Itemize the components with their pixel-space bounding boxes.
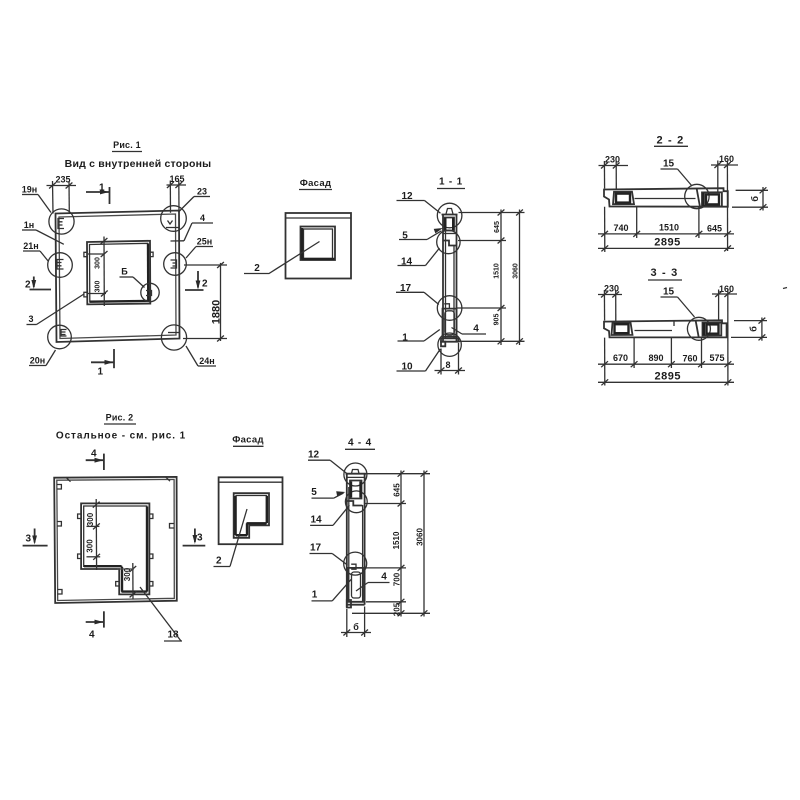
svg-text:12: 12 [308,450,320,461]
svg-text:24н: 24н [199,356,214,366]
svg-text:205: 205 [393,602,402,616]
svg-text:645: 645 [707,224,722,234]
svg-text:17: 17 [310,543,322,554]
svg-text:300: 300 [94,257,101,269]
svg-text:2: 2 [202,279,208,290]
svg-text:4: 4 [91,449,97,460]
svg-text:300: 300 [86,539,95,553]
svg-text:1 - 1: 1 - 1 [439,177,463,188]
svg-text:14: 14 [310,515,322,526]
svg-text:3: 3 [28,314,33,324]
svg-text:3060: 3060 [512,263,519,279]
svg-text:300: 300 [86,512,95,526]
svg-text:300: 300 [123,567,132,581]
svg-text:25н: 25н [197,237,212,247]
svg-text:3: 3 [197,533,203,544]
svg-text:1: 1 [98,367,104,378]
svg-text:3060: 3060 [416,528,425,546]
svg-text:15: 15 [663,159,675,170]
svg-text:Фасад: Фасад [232,435,264,446]
svg-text:21н: 21н [23,241,38,251]
svg-text:5: 5 [311,487,317,498]
svg-text:2895: 2895 [655,371,681,383]
svg-text:700: 700 [393,572,402,586]
svg-text:230: 230 [604,284,619,294]
svg-text:2: 2 [254,263,260,274]
svg-text:740: 740 [613,223,628,233]
svg-text:Остальное - см. рис. 1: Остальное - см. рис. 1 [56,431,186,442]
svg-text:4 - 4: 4 - 4 [348,438,372,449]
svg-text:Рис. 2: Рис. 2 [106,413,134,423]
svg-text:1510: 1510 [493,263,500,279]
svg-text:15: 15 [663,287,675,298]
svg-text:8: 8 [445,360,450,370]
svg-text:2 - 2: 2 - 2 [656,135,684,147]
svg-text:б: б [750,196,760,202]
svg-text:1510: 1510 [392,531,401,549]
svg-text:2895: 2895 [654,237,680,249]
svg-text:4: 4 [381,572,387,583]
svg-text:645: 645 [494,221,501,233]
svg-text:3: 3 [26,534,32,545]
svg-text:890: 890 [648,353,663,363]
svg-text:19н: 19н [22,185,37,195]
svg-text:23: 23 [197,187,207,197]
svg-text:4: 4 [200,213,205,223]
svg-text:Вид с внутренней стороны: Вид с внутренней стороны [65,158,212,170]
svg-text:4: 4 [473,324,479,335]
svg-text:670: 670 [613,353,628,363]
svg-text:3 - 3: 3 - 3 [650,267,678,279]
svg-text:2: 2 [216,556,222,567]
svg-text:905: 905 [493,314,500,326]
svg-text:б: б [748,326,758,332]
svg-text:1510: 1510 [659,223,679,233]
svg-text:300: 300 [94,281,101,293]
svg-text:760: 760 [682,354,697,364]
svg-text:235: 235 [55,175,70,185]
svg-text:4: 4 [89,630,95,641]
svg-text:Фасад: Фасад [300,178,332,189]
svg-text:1880: 1880 [210,300,222,324]
svg-text:Рис. 1: Рис. 1 [113,140,141,150]
svg-text:1: 1 [402,333,408,344]
svg-text:575: 575 [709,353,724,363]
svg-text:1н: 1н [24,220,34,230]
svg-text:1: 1 [312,590,318,601]
svg-text:б: б [353,622,359,632]
svg-text:Б: Б [121,267,128,277]
svg-text:20н: 20н [30,356,45,366]
svg-text:645: 645 [393,483,402,497]
